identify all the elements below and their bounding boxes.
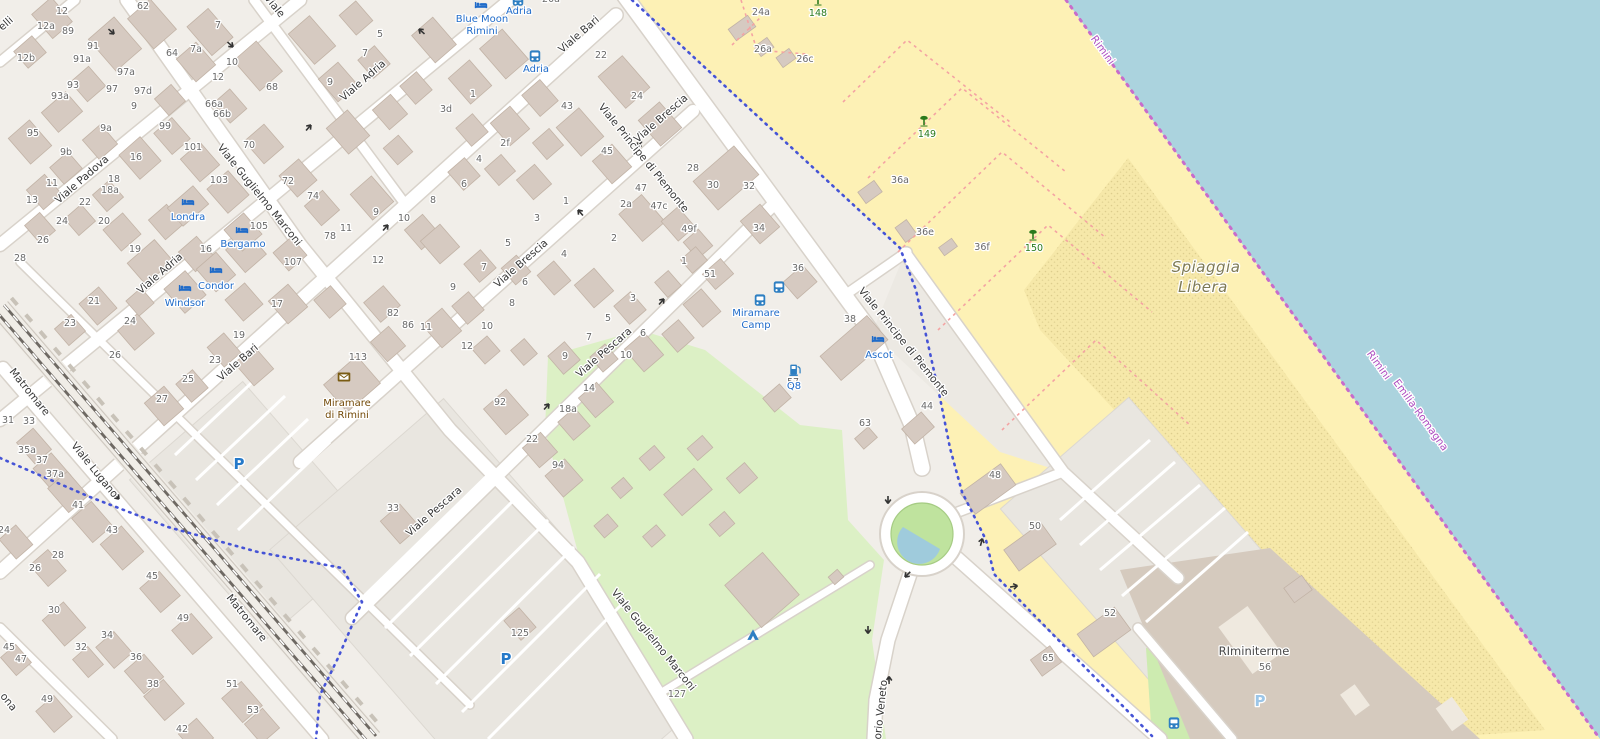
- house-number: 52: [1104, 608, 1116, 619]
- house-number: 103: [210, 175, 228, 186]
- place-label: RIminiterme: [1219, 644, 1290, 658]
- house-number: 8: [430, 195, 436, 206]
- house-number: 45: [146, 571, 158, 582]
- house-number: 21: [88, 296, 100, 307]
- house-number: 24: [56, 216, 68, 227]
- house-number: 26: [29, 563, 41, 574]
- house-number: 45: [3, 642, 15, 653]
- house-number: 1: [681, 256, 687, 267]
- house-number: 97a: [117, 67, 135, 78]
- house-number: 92: [494, 397, 506, 408]
- house-number: 8: [509, 298, 515, 309]
- house-number: 33: [387, 503, 399, 514]
- house-number: 18a: [101, 185, 119, 196]
- house-number: 66b: [213, 109, 231, 120]
- house-number: 33: [23, 416, 35, 427]
- tree-label: 149: [918, 129, 936, 140]
- house-number: 7: [586, 332, 592, 343]
- house-number: 5: [605, 313, 611, 324]
- house-number: 18: [108, 174, 120, 185]
- house-number: 28: [52, 550, 64, 561]
- bus-stop-icon[interactable]: [530, 50, 541, 61]
- house-number: 43: [106, 525, 118, 536]
- house-number: 45: [601, 146, 613, 157]
- tree-label: 148: [809, 8, 827, 19]
- house-number: 51: [704, 269, 716, 280]
- house-number: 19: [129, 244, 141, 255]
- map-viewport[interactable]: elliViale PadovaViale AdriaViale AdriaVi…: [0, 0, 1600, 739]
- house-number: 53: [247, 705, 259, 716]
- house-number: 38: [844, 314, 856, 325]
- house-number: 4: [476, 154, 482, 165]
- house-number: 28: [687, 163, 699, 174]
- house-number: 36: [792, 263, 804, 274]
- house-number: 32: [75, 642, 87, 653]
- house-number: 23: [209, 355, 221, 366]
- house-number: 26: [109, 350, 121, 361]
- house-number: 35a: [18, 445, 36, 456]
- house-number: 10: [226, 57, 238, 68]
- house-number: 105: [250, 221, 268, 232]
- house-number: 16: [130, 152, 142, 163]
- house-number: 9: [562, 351, 568, 362]
- house-number: 31: [2, 415, 14, 426]
- tree-label: 150: [1025, 243, 1043, 254]
- house-number: 36a: [891, 175, 909, 186]
- house-number: 9: [131, 101, 137, 112]
- house-number: 11: [420, 322, 432, 333]
- house-number: 12: [56, 6, 68, 17]
- house-number: 18a: [559, 404, 577, 415]
- house-number: 43: [561, 101, 573, 112]
- house-number: 24a: [752, 7, 770, 18]
- bus-stop-label: Adria: [506, 6, 532, 17]
- house-number: 62: [137, 1, 149, 12]
- house-number: 12: [461, 341, 473, 352]
- house-number: 7: [481, 262, 487, 273]
- house-number: 125: [511, 628, 529, 639]
- house-number: 94: [552, 460, 564, 471]
- house-number: 19: [233, 330, 245, 341]
- house-number: 11: [340, 223, 352, 234]
- house-number: 22: [526, 434, 538, 445]
- map-canvas[interactable]: elliViale PadovaViale AdriaViale AdriaVi…: [0, 0, 1600, 739]
- hotel-label: Blue Moon: [456, 14, 509, 25]
- house-number: 9: [327, 77, 333, 88]
- hotel-label: Ascot: [865, 350, 893, 361]
- bus-stop-icon[interactable]: [755, 294, 766, 305]
- house-number: 17: [271, 299, 283, 310]
- house-number: 41: [72, 500, 84, 511]
- beach-name-label: Spiaggia: [1172, 258, 1241, 276]
- house-number: 3: [534, 213, 540, 224]
- house-number: 12b: [17, 53, 35, 64]
- house-number: 99: [159, 121, 171, 132]
- house-number: 50: [1029, 521, 1041, 532]
- house-number: 78: [324, 231, 336, 242]
- house-number: 49f: [681, 224, 697, 235]
- house-number: 4: [561, 249, 567, 260]
- house-number: 37: [36, 455, 48, 466]
- house-number: 32: [743, 181, 755, 192]
- house-number: 6: [522, 277, 528, 288]
- house-number: 127: [668, 689, 686, 700]
- house-number: 38: [147, 679, 159, 690]
- bus-stop-label: Adria: [523, 64, 549, 75]
- house-number: 2f: [500, 138, 510, 149]
- parking-icon[interactable]: P: [501, 650, 512, 668]
- house-number: 13: [26, 195, 38, 206]
- house-number: 47: [15, 654, 27, 665]
- house-number: 48: [989, 470, 1001, 481]
- house-number: 97d: [134, 86, 152, 97]
- house-number: 22: [79, 197, 91, 208]
- post-office-icon[interactable]: [338, 372, 351, 381]
- house-number: 9: [450, 282, 456, 293]
- house-number: 93: [67, 80, 79, 91]
- house-number: 91a: [73, 54, 91, 65]
- hotel-label: Londra: [171, 212, 205, 223]
- house-number: 10: [398, 213, 410, 224]
- house-number: 1: [470, 89, 476, 100]
- bus-stop-label: Miramare: [732, 308, 780, 319]
- house-number: 65: [1042, 653, 1054, 664]
- house-number: 10: [620, 350, 632, 361]
- house-number: 5: [505, 238, 511, 249]
- house-number: 107: [284, 257, 302, 268]
- house-number: 49: [177, 613, 189, 624]
- house-number: 36e: [916, 227, 934, 238]
- house-number: 20a: [542, 0, 560, 5]
- bus-stop-icon[interactable]: [774, 281, 785, 292]
- house-number: 44: [921, 401, 933, 412]
- house-number: 14: [583, 383, 595, 394]
- house-number: 9b: [60, 147, 72, 158]
- house-number: 47: [635, 183, 647, 194]
- house-number: 11: [46, 178, 58, 189]
- house-number: 3: [630, 293, 636, 304]
- house-number: 24: [631, 91, 643, 102]
- house-number: 56: [1259, 662, 1271, 673]
- house-number: 26c: [796, 54, 813, 65]
- house-number: 82: [387, 308, 399, 319]
- house-number: 12: [212, 72, 224, 83]
- house-number: 1: [563, 196, 569, 207]
- bus-stop-label: Camp: [741, 320, 770, 331]
- house-number: 28: [14, 253, 26, 264]
- hotel-label: Rimini: [466, 26, 497, 37]
- house-number: 7: [215, 20, 221, 31]
- house-number: 36f: [974, 242, 990, 253]
- post-office-label: di Rimini: [325, 410, 369, 421]
- house-number: 6: [640, 328, 646, 339]
- house-number: 30: [707, 180, 719, 191]
- house-number: 7a: [190, 44, 202, 55]
- house-number: 51: [226, 679, 238, 690]
- house-number: 113: [349, 352, 367, 363]
- post-office-label: Miramare: [323, 398, 371, 409]
- house-number: 3d: [440, 104, 452, 115]
- house-number: 72: [282, 176, 294, 187]
- house-number: 2a: [620, 199, 632, 210]
- hotel-label: Condor: [198, 281, 235, 292]
- house-number: 12a: [37, 21, 55, 32]
- house-number: 64: [166, 48, 178, 59]
- parking-icon[interactable]: P: [234, 455, 245, 473]
- house-number: 74: [307, 191, 319, 202]
- house-number: 25: [182, 374, 194, 385]
- house-number: 70: [243, 140, 255, 151]
- house-number: 5: [377, 29, 383, 40]
- beach-name-label: Libera: [1178, 278, 1228, 296]
- house-number: 36: [130, 652, 142, 663]
- hotel-label: Bergamo: [220, 239, 265, 250]
- fuel-station-label: Q8: [787, 381, 801, 392]
- house-number: 49: [41, 694, 53, 705]
- house-number: 34: [101, 630, 113, 641]
- house-number: 9: [373, 207, 379, 218]
- house-number: 86: [402, 320, 414, 331]
- house-number: 27: [156, 394, 168, 405]
- hotel-label: Windsor: [165, 298, 206, 309]
- house-number: 12: [372, 255, 384, 266]
- house-number: 89: [62, 26, 74, 37]
- house-number: 91: [87, 41, 99, 52]
- house-number: 101: [184, 142, 202, 153]
- bus-stop-icon[interactable]: [1169, 717, 1180, 728]
- house-number: 23: [64, 318, 76, 329]
- house-number: 20: [98, 216, 110, 227]
- house-number: 63: [859, 418, 871, 429]
- house-number: 9a: [100, 123, 112, 134]
- house-number: 24: [124, 316, 136, 327]
- house-number: 6: [461, 179, 467, 190]
- house-number: 22: [595, 50, 607, 61]
- house-number: 7: [362, 48, 368, 59]
- house-number: 42: [176, 724, 188, 735]
- house-number: 97: [106, 84, 118, 95]
- house-number: 34: [753, 223, 765, 234]
- house-number: 10: [481, 321, 493, 332]
- house-number: 2: [611, 233, 617, 244]
- house-number: 68: [266, 82, 278, 93]
- house-number: 93a: [51, 91, 69, 102]
- house-number: 95: [27, 128, 39, 139]
- house-number: 16: [200, 244, 212, 255]
- house-number: 37a: [46, 469, 64, 480]
- bus-stop-icon[interactable]: [513, 0, 524, 6]
- house-number: 30: [48, 605, 60, 616]
- house-number: 24: [0, 525, 10, 536]
- house-number: 26a: [754, 44, 772, 55]
- house-number: 47c: [650, 201, 667, 212]
- house-number: 26: [37, 235, 49, 246]
- parking-icon[interactable]: P: [1255, 692, 1266, 710]
